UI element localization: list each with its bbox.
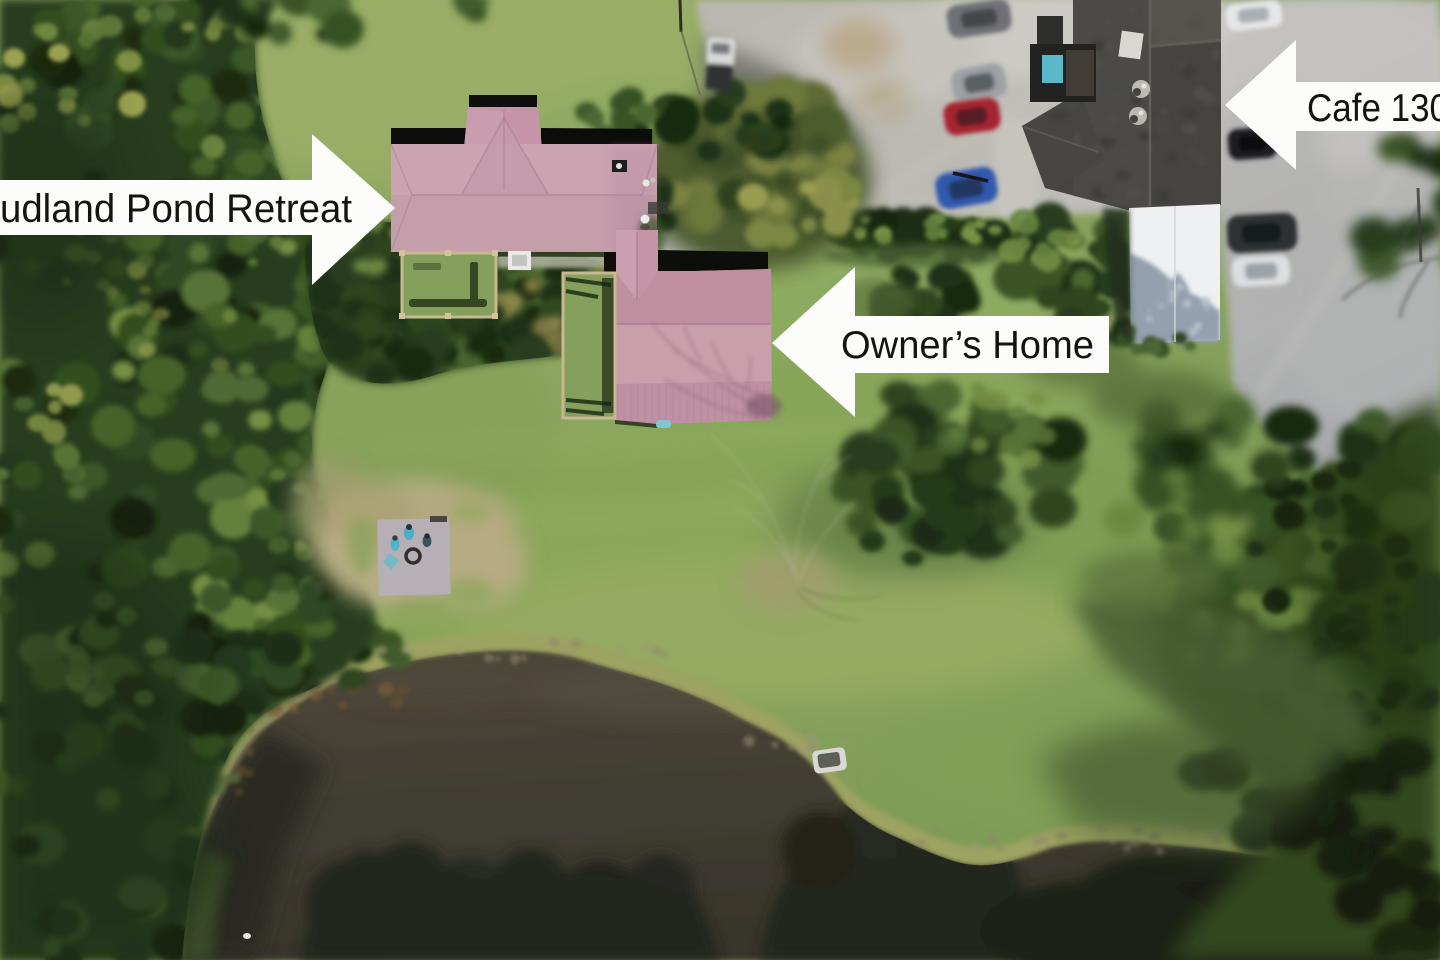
svg-text:Owner’s Home: Owner’s Home — [841, 324, 1094, 367]
svg-text:udland Pond Retreat: udland Pond Retreat — [0, 187, 352, 231]
svg-text:Cafe 130: Cafe 130 — [1307, 87, 1440, 130]
